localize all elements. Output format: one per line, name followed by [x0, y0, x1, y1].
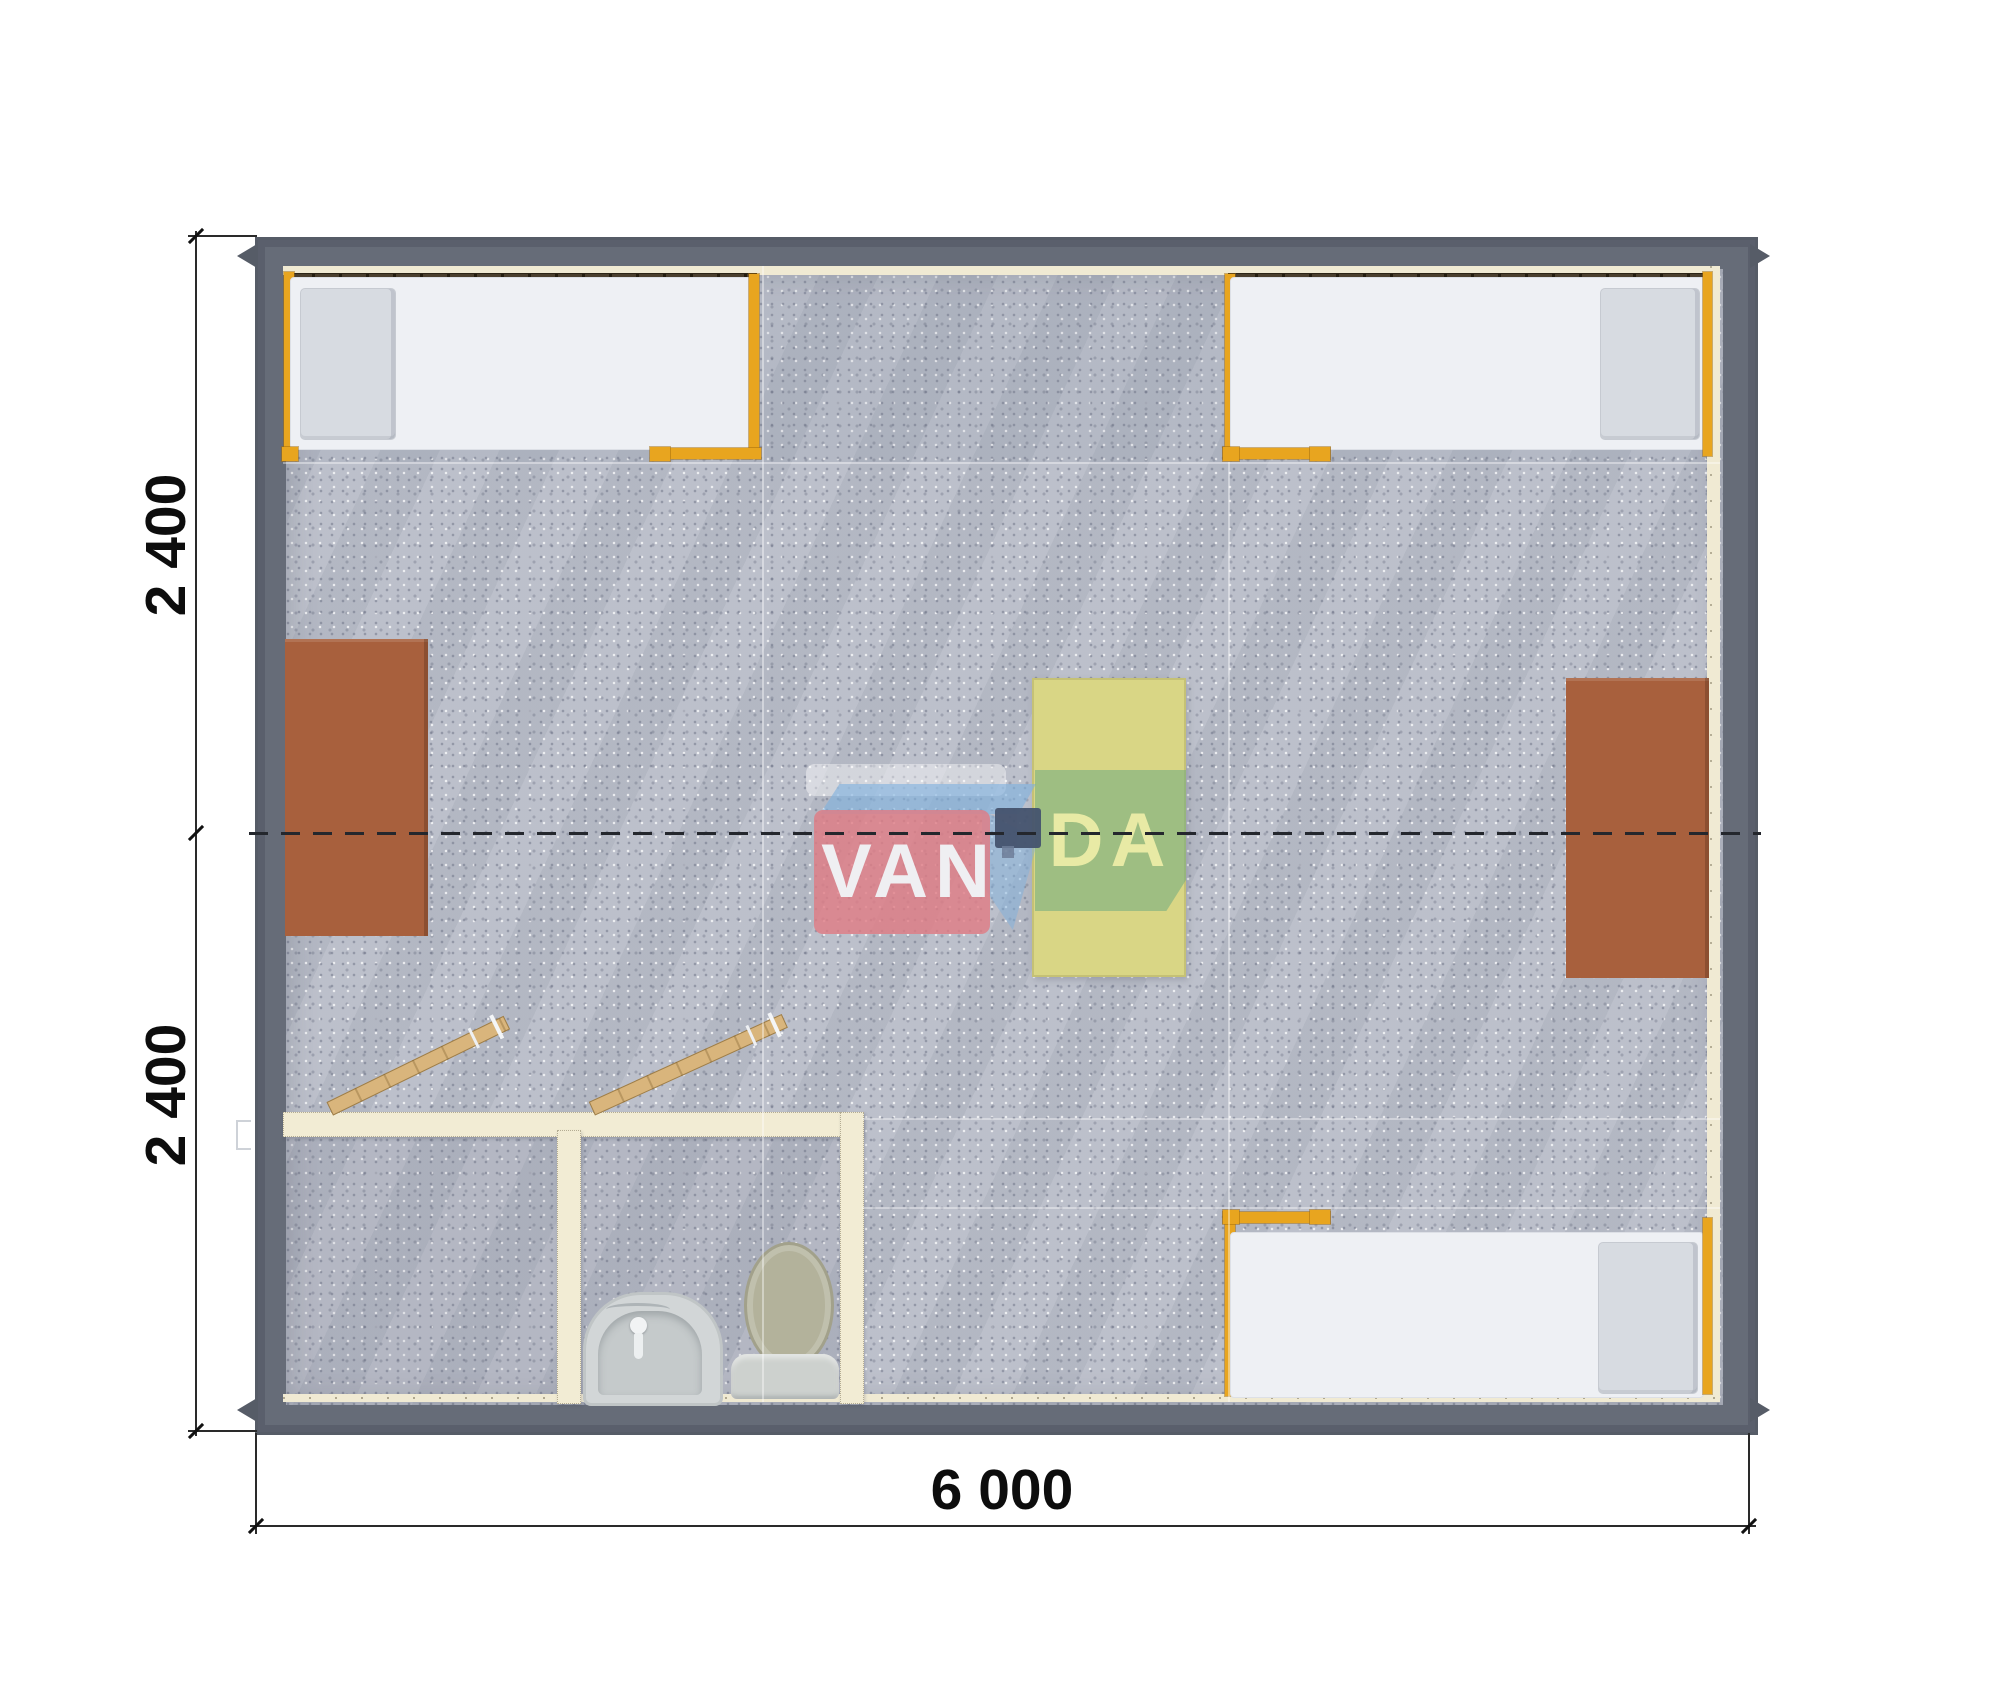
bed-frame-foot — [282, 447, 298, 461]
watermark-text-da: DA — [1049, 803, 1173, 879]
dimension-line-horizontal — [250, 1525, 1756, 1527]
bed-frame-rail — [1703, 272, 1712, 456]
desk-right — [1566, 678, 1709, 978]
bed-frame-rail — [1703, 1218, 1712, 1394]
left-wall-cladding-marks — [250, 270, 255, 1400]
floor-seam — [862, 1207, 1720, 1209]
entry-room-floor — [283, 1135, 557, 1397]
corner-marker-top-left-icon — [237, 244, 257, 268]
bed-frame-foot — [1223, 1210, 1239, 1224]
watermark-text-van: VAN — [821, 834, 997, 910]
watermark-da-box: DA — [1035, 770, 1186, 911]
watermark-van-box: VAN — [814, 810, 990, 934]
watermark-cube-icon — [995, 808, 1041, 848]
partition-wall-entry — [557, 1130, 581, 1404]
dimension-label-width: 6 000 — [931, 1457, 1074, 1523]
bed-frame-rail — [749, 274, 759, 450]
washbasin — [583, 1292, 723, 1406]
partition-wall-bathroom — [840, 1112, 864, 1404]
dimension-label-module-bottom: 2 400 — [133, 1024, 199, 1167]
floor-seam — [1228, 462, 1230, 1402]
washbasin-bowl — [598, 1311, 702, 1395]
door-handle-icon — [489, 1014, 504, 1039]
extension-line — [1748, 1433, 1750, 1534]
corner-marker-bottom-right-icon — [1750, 1398, 1770, 1422]
extension-line — [255, 1433, 257, 1534]
faucet-spout — [634, 1333, 643, 1359]
toilet-lid — [744, 1242, 834, 1369]
bed-frame-foot — [1310, 447, 1330, 461]
toilet-seat — [731, 1354, 839, 1399]
bed-frame-foot — [1223, 447, 1239, 461]
door-hinge-icon — [745, 1025, 757, 1046]
exterior-fitting — [236, 1120, 251, 1150]
watermark-cube-tab — [1002, 846, 1014, 858]
corner-marker-bottom-left-icon — [237, 1398, 257, 1422]
faucet-icon — [630, 1317, 647, 1334]
door-hinge-icon — [468, 1028, 480, 1049]
module-joint-line — [249, 832, 1761, 835]
bed-frame-footboard — [655, 448, 761, 459]
desk-left — [285, 639, 428, 936]
bed-pillow — [300, 288, 396, 440]
corner-marker-top-right-icon — [1750, 244, 1770, 268]
washbasin-ledge — [606, 1303, 670, 1316]
bed-frame-foot — [650, 447, 670, 461]
floor-plan-rendering: VAN DA 2 400 2 400 6 000 — [0, 0, 2000, 1701]
floor-seam — [283, 462, 1720, 464]
floor-seam — [862, 1118, 1720, 1120]
bed-frame-foot — [1310, 1210, 1330, 1224]
bed-pillow — [1598, 1242, 1698, 1394]
dimension-label-module-top: 2 400 — [133, 474, 199, 617]
bed-pillow — [1600, 288, 1700, 440]
